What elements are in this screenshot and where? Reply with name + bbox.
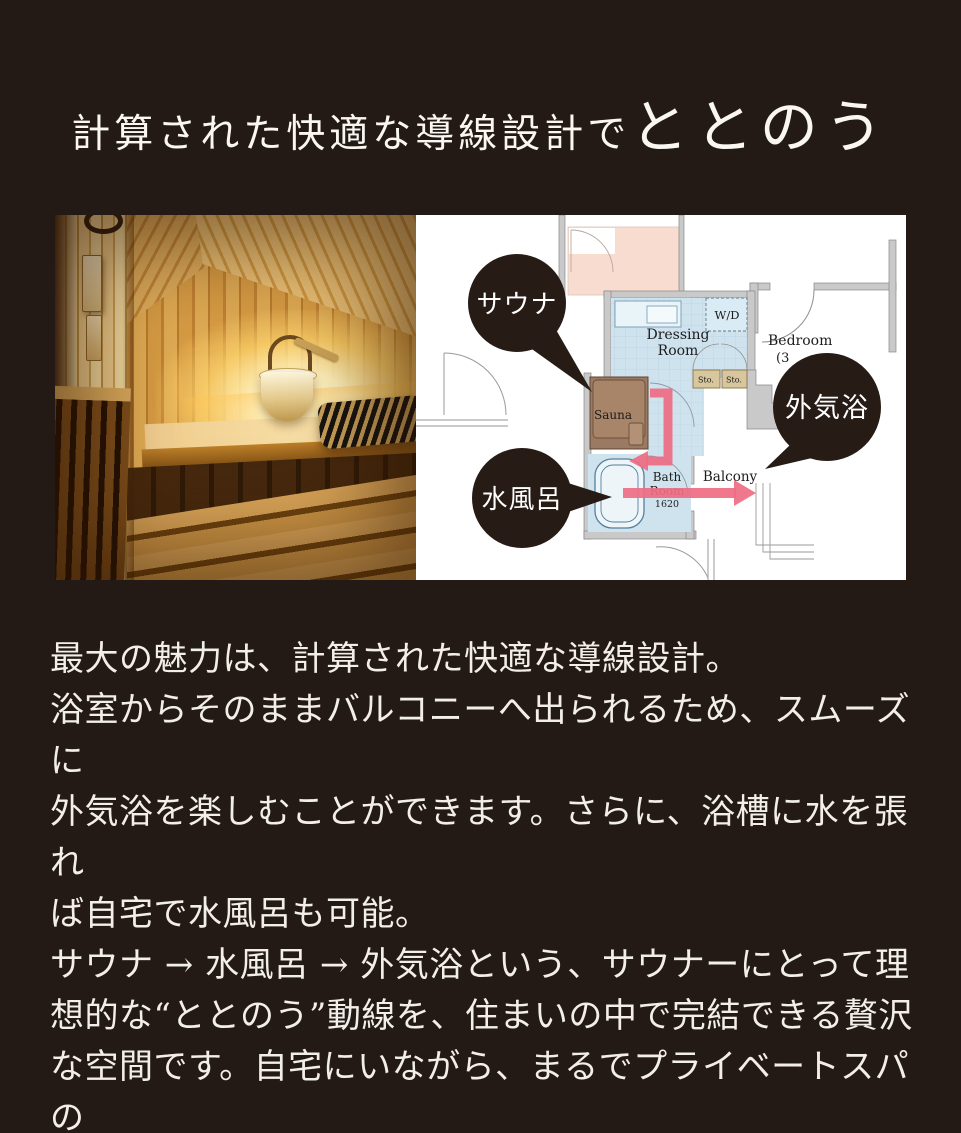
plan-label-dressing2: Room <box>658 343 699 359</box>
body-copy: 最大の魅力は、計算された快適な導線設計。 浴室からそのままバルコニーへ出られるた… <box>50 634 916 1133</box>
plan-balcony-hatch <box>756 483 814 559</box>
page-title: 計算された快適な導線設計で ととのう <box>0 80 961 164</box>
body-paragraph-2: 浴室からそのままバルコニーへ出られるため、スムーズに 外気浴を楽しむことができま… <box>50 685 916 940</box>
callout-cold-bath-label: 水風呂 <box>481 485 562 515</box>
plan-label-balcony: Balcony <box>703 469 758 485</box>
callout-sauna-label: サウナ <box>476 290 557 320</box>
body-paragraph-3: サウナ → 水風呂 → 外気浴という、サウナーにとって理 想的な“ととのう”動線… <box>50 940 916 1133</box>
plan-label-sauna: Sauna <box>594 408 632 422</box>
plan-wall <box>679 215 684 295</box>
plan-label-sto-right: Sto. <box>726 376 742 385</box>
plan-label-bath1: Bath <box>653 470 682 484</box>
promo-panel: 計算された快適な導線設計で ととのう <box>0 0 961 1133</box>
plan-label-sto-left: Sto. <box>698 376 714 385</box>
plan-room-pink <box>568 227 681 295</box>
plan-left-door <box>416 353 508 426</box>
plan-label-bedroom2: (3 <box>776 351 789 366</box>
callout-outdoor-bath: 外気浴 <box>765 353 881 469</box>
plan-label-dressing1: Dressing <box>646 327 709 343</box>
plan-bottom-door <box>656 539 714 580</box>
plan-label-bedroom1: Bedroom <box>768 333 832 349</box>
plan-label-bath-size: 1620 <box>655 499 679 510</box>
floor-plan-svg: W/D Dressing Room Bedroom (3 Sto. Sto. S… <box>416 215 906 580</box>
body-paragraph-1: 最大の魅力は、計算された快適な導線設計。 <box>50 634 916 685</box>
floor-plan: W/D Dressing Room Bedroom (3 Sto. Sto. S… <box>416 215 906 580</box>
page-title-main: 計算された快適な導線設計で <box>71 103 630 159</box>
sauna-photo-vignette <box>55 215 416 580</box>
callout-outdoor-bath-label: 外気浴 <box>785 393 869 424</box>
plan-label-wd: W/D <box>715 308 740 322</box>
sauna-photo <box>55 215 416 580</box>
page-title-emphasis: ととのう <box>630 80 889 164</box>
